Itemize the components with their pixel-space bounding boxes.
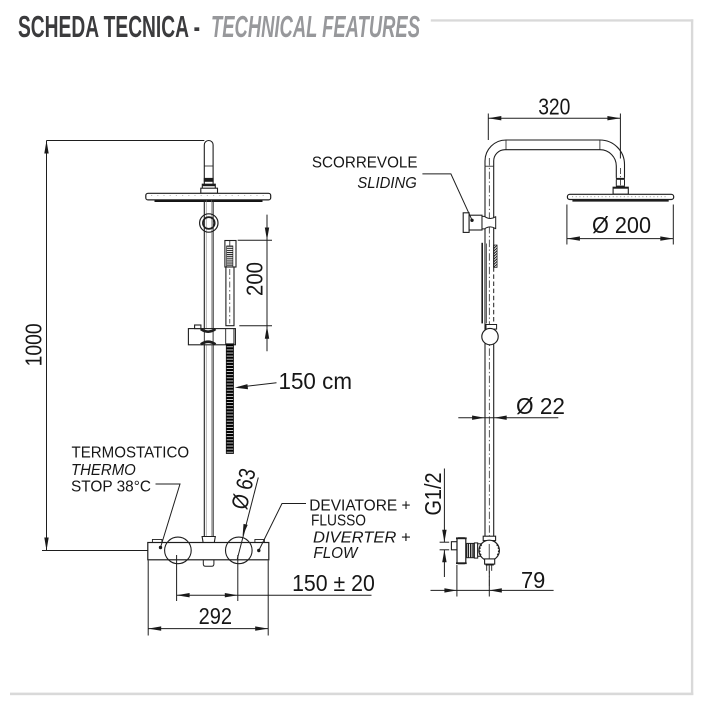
svg-text:G1/2: G1/2 (420, 473, 446, 516)
svg-text:SCORREVOLE: SCORREVOLE (312, 155, 418, 172)
svg-text:FLOW: FLOW (313, 545, 359, 562)
svg-text:TECHNICAL FEATURES: TECHNICAL FEATURES (211, 9, 420, 44)
svg-text:1000: 1000 (21, 323, 47, 366)
svg-text:SCHEDA TECNICA -: SCHEDA TECNICA - (18, 9, 200, 44)
svg-text:STOP 38°C: STOP 38°C (71, 478, 151, 495)
svg-text:292: 292 (199, 603, 232, 629)
svg-text:Ø 200: Ø 200 (592, 212, 651, 238)
svg-text:200: 200 (242, 262, 268, 296)
svg-text:TERMOSTATICO: TERMOSTATICO (72, 444, 190, 461)
svg-text:320: 320 (538, 94, 570, 120)
svg-text:FLUSSO: FLUSSO (311, 513, 366, 530)
svg-text:150 cm: 150 cm (279, 368, 353, 394)
svg-text:150 ± 20: 150 ± 20 (292, 570, 375, 596)
svg-text:SLIDING: SLIDING (357, 175, 416, 192)
svg-text:79: 79 (521, 567, 545, 593)
svg-text:THERMO: THERMO (71, 462, 136, 479)
svg-text:Ø 22: Ø 22 (516, 393, 565, 419)
